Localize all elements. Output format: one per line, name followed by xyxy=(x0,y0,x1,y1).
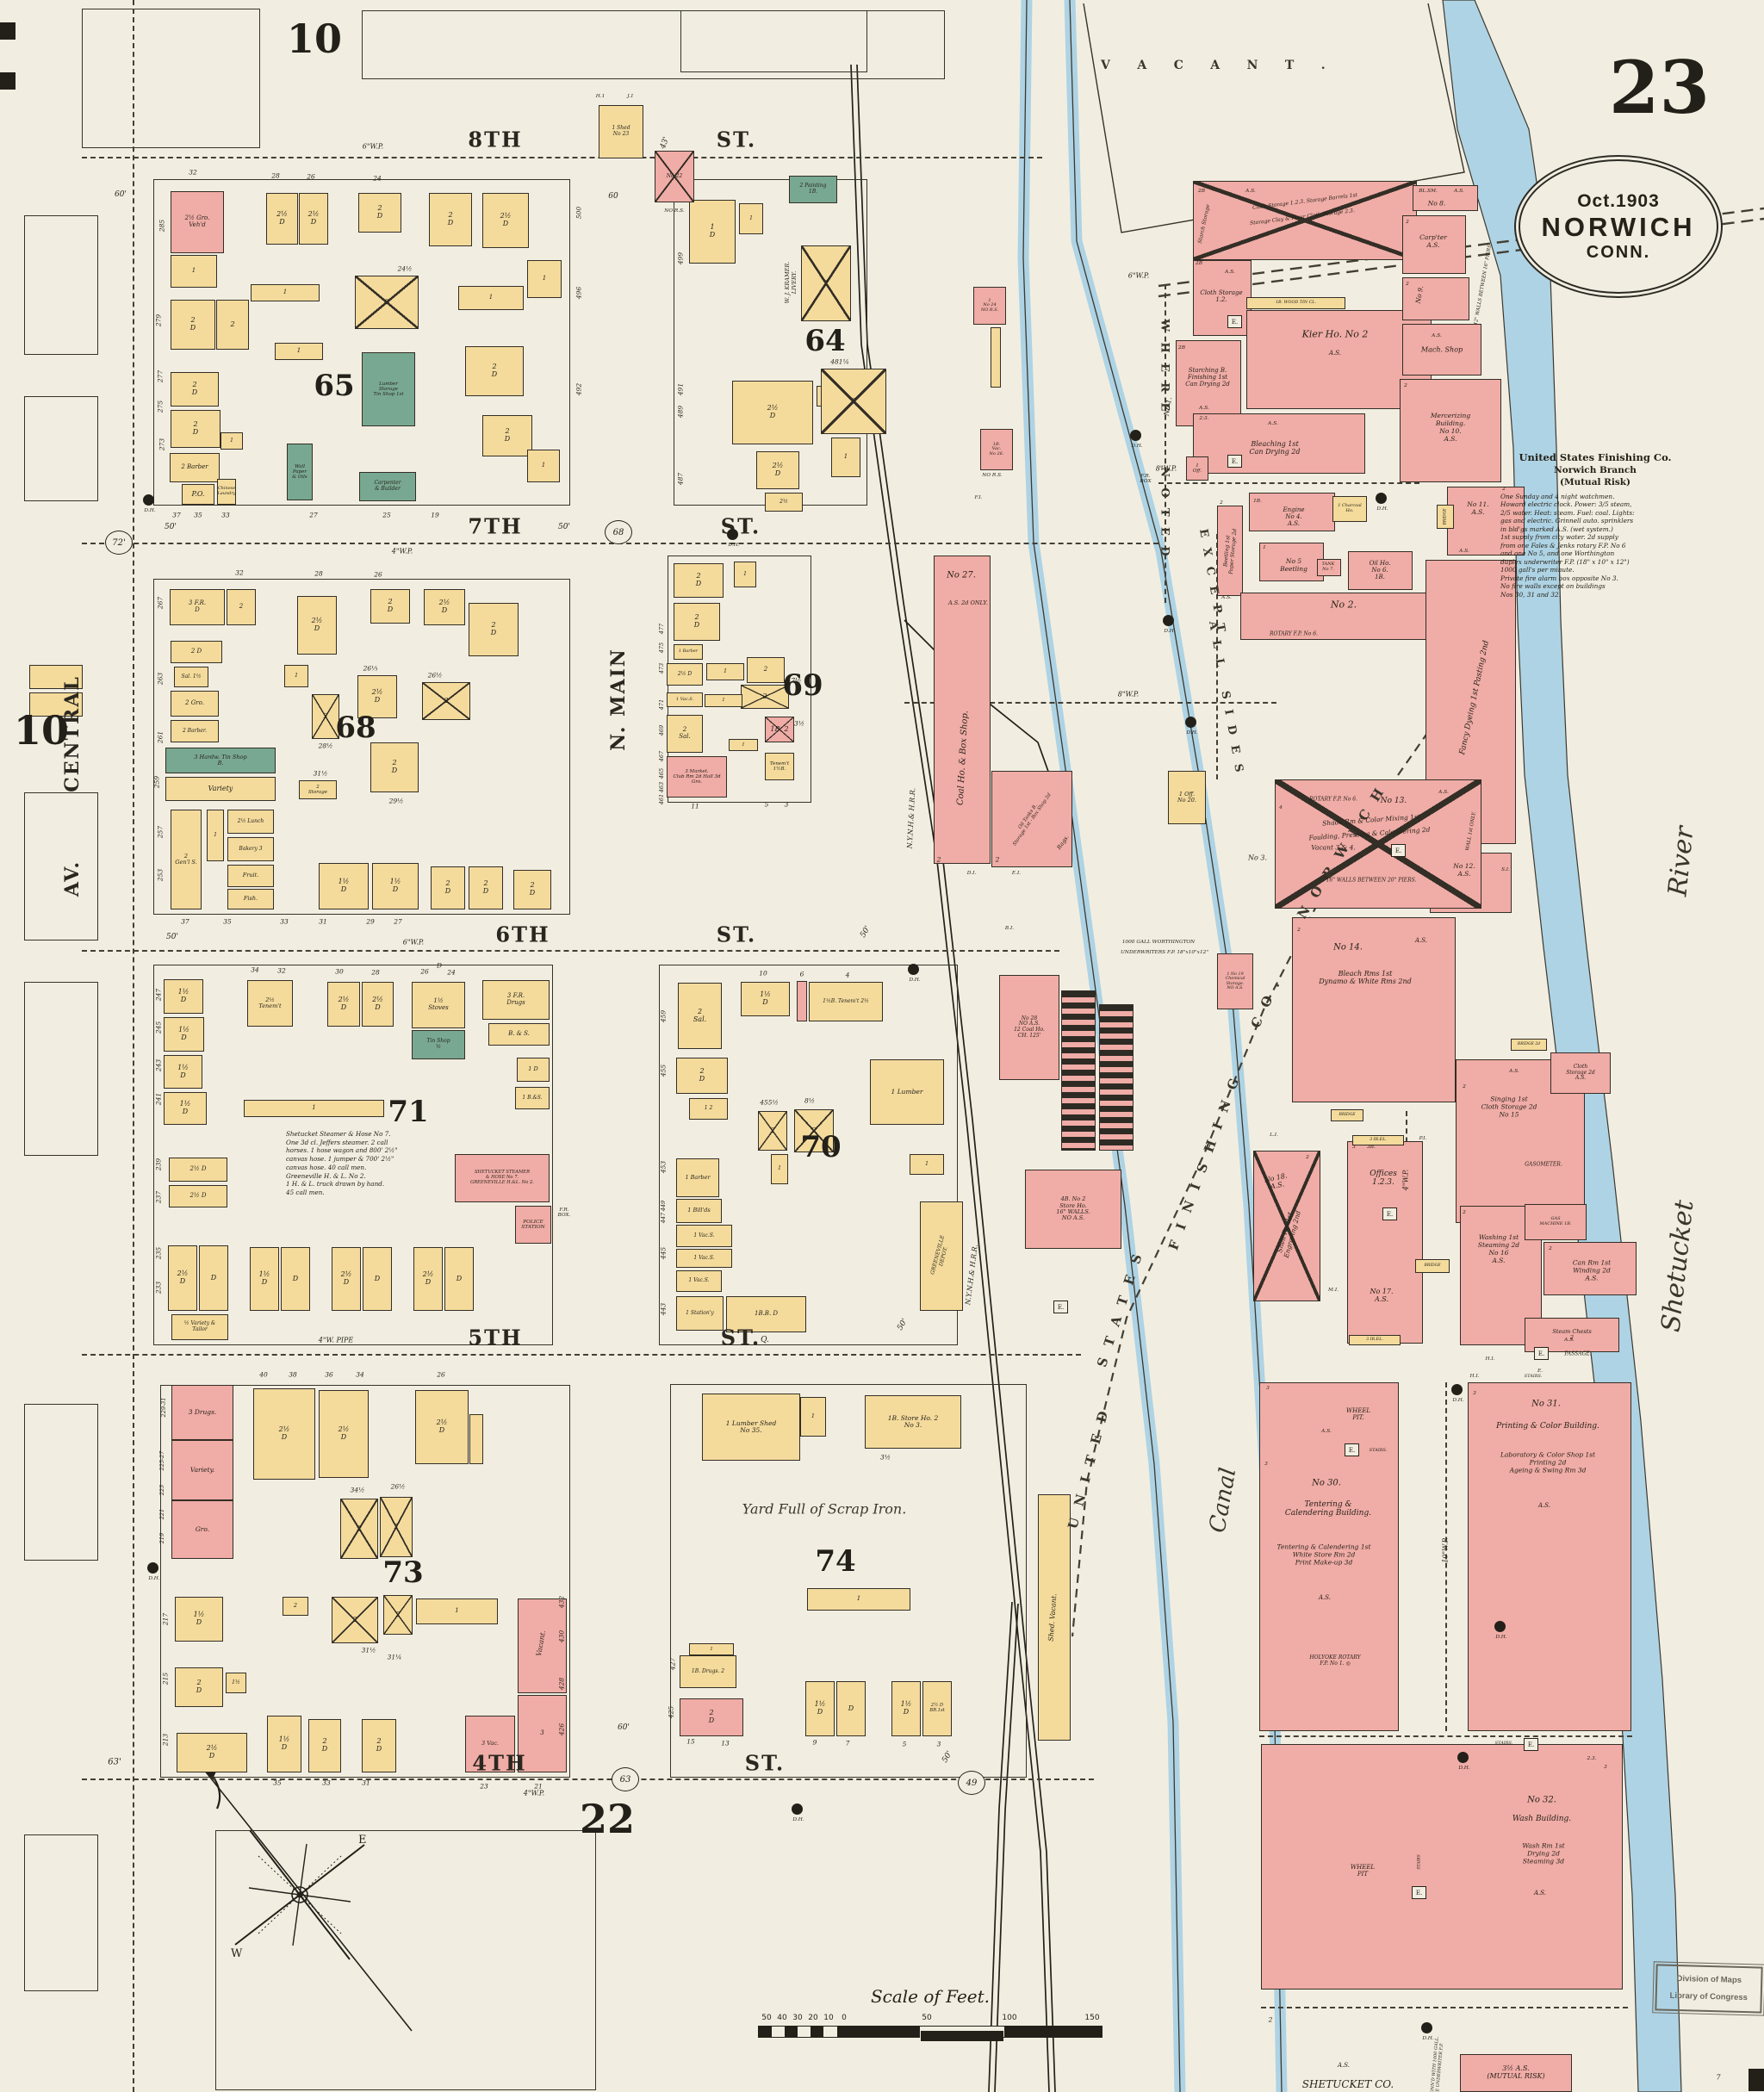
building: 1B. Store Ho. 2 No 3. xyxy=(865,1395,961,1449)
building: 3 Market. Club Rm 2d Hall 3d Gro. xyxy=(667,756,727,798)
building: 1 xyxy=(244,1100,384,1117)
map-label: Tentering & Calendering 1st White Store … xyxy=(1277,1543,1371,1567)
map-label: No 13. xyxy=(1381,797,1407,805)
map-label: B.I. xyxy=(1005,926,1014,931)
map-label: 229-31 xyxy=(160,1398,167,1418)
building: 1B. Drugs. 2 xyxy=(680,1655,736,1688)
company-note-line: duplex underwriter F.P. (18" x 10" x 12"… xyxy=(1500,558,1690,566)
company-note-line: 1000 gall's per minute. xyxy=(1500,566,1690,574)
building: Sal. 1½ xyxy=(174,667,208,687)
loc-line2: Library of Congress xyxy=(1660,1987,1756,2007)
map-label: 239 xyxy=(155,1158,163,1170)
building: 3 Hardw. Tin Shop B. xyxy=(165,748,276,773)
street-name-label: 4TH xyxy=(472,1751,526,1776)
company-note-line: from one Fales & Jenks rotary F.P. No 6 xyxy=(1500,542,1690,549)
building: BRIDGE xyxy=(1331,1109,1363,1121)
block-number: 70 xyxy=(800,1130,841,1164)
map-label: 491 xyxy=(677,383,685,395)
company-note-line: Howard electric clock. Power: 3/5 steam, xyxy=(1500,500,1690,508)
map-label: No 5 Beetling xyxy=(1280,557,1307,573)
double-hydrant-marker xyxy=(1163,615,1174,626)
building: Tin Shop ½ xyxy=(412,1030,465,1059)
building: 2 xyxy=(758,1111,787,1151)
map-label: 455½ xyxy=(760,1099,779,1107)
map-label: STAIRS. xyxy=(1495,1741,1513,1746)
map-label: 50' xyxy=(859,924,873,939)
map-label: 4 xyxy=(1279,805,1283,810)
company-note-line: No fire walls except on buildings xyxy=(1500,582,1690,590)
map-label: 34 xyxy=(356,1371,364,1379)
elevator-marker: E. xyxy=(1524,1738,1538,1751)
map-label: Carp'ter A.S. xyxy=(1419,233,1447,249)
map-label: 60' xyxy=(618,1723,630,1732)
building: 2 D xyxy=(465,346,524,396)
street-centerline xyxy=(1261,2007,1628,2008)
double-hydrant-marker xyxy=(1451,1384,1463,1395)
block-number: 64 xyxy=(804,324,845,358)
street-name-label: ST. xyxy=(721,1325,761,1350)
map-label: 60' xyxy=(115,190,127,199)
map-label: 3 xyxy=(1352,1145,1356,1150)
map-label: A.S. xyxy=(1415,937,1427,944)
map-label: 4"W.P. xyxy=(392,548,413,556)
map-label: 465 xyxy=(658,768,665,779)
map-label: 33 xyxy=(280,918,289,926)
fire-note-line: 45 call men. xyxy=(286,1189,458,1197)
map-label: STAIRS. xyxy=(1370,1448,1388,1453)
building: 1½ D xyxy=(891,1681,921,1736)
double-hydrant-label: D.H. xyxy=(1376,506,1388,512)
building: 1½ D xyxy=(319,863,369,909)
map-label: 426 xyxy=(558,1723,566,1735)
building: 1 Station'y xyxy=(676,1296,724,1331)
map-label: 237 xyxy=(155,1191,163,1203)
company-note-line: Nos 30, 31 and 32. xyxy=(1500,591,1690,599)
building: 3 IR.EL. xyxy=(1352,1135,1404,1145)
map-label: 223 xyxy=(158,1485,165,1495)
building: 2½ D xyxy=(168,1245,197,1311)
map-label: No 11. A.S. xyxy=(1467,500,1488,516)
map-label: 7 xyxy=(846,1740,850,1747)
map-label: 430 xyxy=(558,1630,566,1642)
map-label: 253 xyxy=(157,869,165,881)
elevator-marker: E. xyxy=(1227,315,1242,328)
double-hydrant-marker xyxy=(1130,430,1141,441)
map-label: A.S. xyxy=(1321,1429,1332,1434)
map-label: D xyxy=(437,962,442,970)
map-label: 35 xyxy=(223,918,232,926)
map-label: NO R.S. xyxy=(664,208,684,214)
map-layers: 8THST.7THST.6THST.5THST.4THST.2½ Gro. Ve… xyxy=(0,0,1764,2092)
building: 2 xyxy=(340,1499,378,1559)
map-label: No 31. xyxy=(1531,1400,1561,1409)
building: 2 D xyxy=(358,193,401,233)
map-label: 5 xyxy=(903,1741,907,1748)
building: 2 Barber. xyxy=(171,720,219,742)
map-label: 24 xyxy=(373,175,382,183)
building: 1 Lumber xyxy=(870,1059,944,1125)
map-label: CO. xyxy=(1248,968,1289,1031)
building: 1½ D xyxy=(175,1597,223,1642)
map-label: 2.3. xyxy=(1587,1756,1596,1761)
block-number: 74 xyxy=(815,1544,855,1579)
building: 2 D xyxy=(171,641,222,663)
map-label: 473 xyxy=(658,663,665,674)
scale-bar: Scale of Feet. 5040302010050100150 xyxy=(758,1986,1102,2038)
map-label: 2 xyxy=(1406,282,1409,287)
map-label: 492 xyxy=(575,383,583,395)
building: 1 xyxy=(220,432,243,450)
map-label: 2 xyxy=(937,856,941,864)
map-label: 3 xyxy=(1604,1765,1607,1770)
building: 1 xyxy=(734,562,756,587)
scale-tick: 20 xyxy=(808,2014,817,2022)
corner-marker: 63 xyxy=(612,1767,639,1791)
map-label: Wash Building. xyxy=(1512,1815,1571,1823)
company-note-line: 2/5 water. Heat: steam. Fuel: coal. Ligh… xyxy=(1500,509,1690,517)
map-label: 6"W.P. xyxy=(363,143,383,151)
building: 2½ D xyxy=(732,381,813,444)
lot-frame xyxy=(24,982,98,1156)
block-number: 22 xyxy=(580,1796,635,1842)
map-label: H.I. xyxy=(1469,1374,1479,1379)
building: 1 xyxy=(800,1397,826,1437)
map-label: No 12. A.S. xyxy=(1453,862,1475,878)
map-label: Yard Full of Scrap Iron. xyxy=(742,1501,907,1518)
map-label: A.S. xyxy=(1338,2062,1350,2069)
company-note-line: One Sunday and 4 night watchmen. xyxy=(1500,493,1690,500)
building xyxy=(1099,1004,1134,1151)
building: Variety. xyxy=(171,1440,233,1500)
map-label: 11 xyxy=(691,803,699,810)
scale-tick: 0 xyxy=(842,2014,847,2022)
building: 1½ D xyxy=(164,979,203,1014)
map-label: W. J. KRAMER. LIVERY. xyxy=(784,262,798,304)
building: 2 xyxy=(332,1597,378,1643)
block-number: 65 xyxy=(314,369,354,403)
building: 2 D xyxy=(431,866,465,909)
company-note-line: gas and electric. Grinnell auto. sprinkl… xyxy=(1500,517,1690,525)
building: D xyxy=(281,1247,310,1311)
map-label: A.S. xyxy=(1268,421,1278,426)
building: 2½ D xyxy=(319,1390,369,1478)
map-label: A.S. xyxy=(1245,189,1256,194)
building: 1 No 19 Chemical Storage. NO A.S. xyxy=(1217,953,1253,1009)
map-label: 2 xyxy=(996,856,1000,864)
map-label: 29 xyxy=(366,918,375,926)
scale-bar-rule xyxy=(758,2026,1102,2038)
double-hydrant-label: D.H. xyxy=(148,1576,159,1581)
scale-tick: 40 xyxy=(777,2014,786,2022)
building: 1B. Vac. No 26. xyxy=(980,429,1013,470)
map-label: V A C A N T . xyxy=(1101,59,1337,72)
building: Variety xyxy=(165,777,276,801)
building: 2 Gen'l S. xyxy=(171,810,202,909)
map-label: H.I. xyxy=(1485,1356,1494,1362)
map-label: Bleach Rms 1st Dynamo & White Rms 2nd xyxy=(1319,970,1412,985)
map-label: A.S. xyxy=(1538,1502,1550,1509)
map-label: E.I. xyxy=(1012,871,1021,876)
building: 3 Drugs. xyxy=(171,1385,233,1440)
map-label: D.I. xyxy=(967,871,976,876)
map-label: 1B. xyxy=(1253,499,1262,504)
map-label: 32 xyxy=(235,569,244,577)
company-note-body: One Sunday and 4 night watchmen.Howard e… xyxy=(1500,493,1690,599)
map-label: 43' xyxy=(659,136,671,151)
double-hydrant-label: D.H. xyxy=(1186,730,1197,736)
building xyxy=(1468,1382,1631,1731)
map-label: A.S. xyxy=(1225,270,1235,275)
building: 1 xyxy=(729,739,758,751)
building: 2 xyxy=(283,1597,308,1616)
street-centerline xyxy=(82,157,1042,158)
corner-marker: 72' xyxy=(105,531,133,555)
map-label: 26½ xyxy=(428,672,443,680)
building: 1½B. Tenem't 2½ xyxy=(809,982,883,1021)
map-label: 50' xyxy=(558,523,570,531)
map-label: 247 xyxy=(155,989,163,1001)
map-label: Oil Ho. No 6. 1B. xyxy=(1370,560,1391,580)
building: No 28 NO A.S. 12 Coal Ho. CH. 125' xyxy=(999,975,1059,1080)
map-label: 467 xyxy=(658,751,665,761)
building: Fish. xyxy=(227,889,274,909)
map-label: WHEEL PIT. xyxy=(1346,1407,1370,1421)
building: 1 Lumber Shed No 35. xyxy=(702,1394,800,1461)
map-label: F.I. xyxy=(974,495,982,500)
scale-tick: 150 xyxy=(1084,2014,1099,2022)
sheet-edge-mark xyxy=(0,22,16,40)
double-hydrant-label: D.H. xyxy=(1452,1398,1463,1403)
map-label: 35 xyxy=(273,1779,282,1787)
map-label: 2 xyxy=(1404,383,1407,388)
street-name-label: ST. xyxy=(717,922,756,947)
map-label: No 14. xyxy=(1333,943,1363,953)
map-label: 37 xyxy=(172,512,181,519)
street-name-label: 6TH xyxy=(495,922,550,947)
building: B. & S. xyxy=(488,1023,550,1046)
map-label: 6"W.P. CONN'D WITH 1000 GALL. DEANE UNDE… xyxy=(1428,2036,1445,2092)
map-label: BL.SM. xyxy=(1419,189,1438,194)
building: 2 D xyxy=(370,589,410,624)
map-label: Tentering & Calendering Building. xyxy=(1285,1500,1371,1518)
map-label: 3B. xyxy=(1367,1145,1376,1150)
elevator-marker: E. xyxy=(1534,1347,1549,1360)
block-number: 10 xyxy=(14,707,69,754)
building: 1½ D xyxy=(741,982,790,1016)
scale-tick: 100 xyxy=(1002,2014,1016,2022)
building xyxy=(991,327,1001,388)
map-label: 469 xyxy=(658,725,665,736)
map-label: 489 xyxy=(677,406,685,418)
map-label: 447 xyxy=(660,1213,667,1223)
building: 1 xyxy=(831,438,860,477)
building: POLICE STATION xyxy=(515,1206,551,1244)
block-number: 68 xyxy=(335,711,376,745)
building: 1½ xyxy=(226,1673,246,1693)
map-label: ROTARY F.P. No 6. xyxy=(1309,797,1357,803)
map-label: 31 xyxy=(362,1779,370,1787)
lot-frame xyxy=(82,9,260,148)
building: 2 Gro. xyxy=(171,691,219,717)
fire-company-note: Shetucket Steamer & Hose No 7.One 3d cl.… xyxy=(286,1130,458,1197)
map-label: 4"W.P. xyxy=(524,1790,544,1797)
sheet-edge-mark xyxy=(1748,2069,1764,2091)
building: 1½ D xyxy=(372,863,419,909)
map-label: UNITED xyxy=(1065,1398,1114,1530)
map-label: 267 xyxy=(157,597,165,609)
map-label: A.S. xyxy=(1534,1890,1546,1896)
building: 2 D xyxy=(676,1058,728,1094)
map-label: F.R. BOX. xyxy=(558,1207,571,1218)
map-label: No 2. xyxy=(1331,599,1357,611)
map-label: 235 xyxy=(155,1247,163,1259)
building: 1 xyxy=(275,343,323,360)
fire-note-line: horses. 1 hose wagon and 800' 2½" xyxy=(286,1146,458,1155)
map-label: A.S. xyxy=(1459,549,1469,554)
map-label: 487 xyxy=(677,473,685,485)
building: 2 D xyxy=(171,372,219,407)
scale-tick: 50 xyxy=(922,2014,931,2022)
map-label: 259 xyxy=(153,776,161,788)
map-label: 496 xyxy=(575,287,583,299)
double-hydrant-label: D.H. xyxy=(1422,2036,1433,2041)
building: 4B. No 2 Store Ho. 16" WALLS. NO A.S. xyxy=(1025,1170,1121,1249)
building: D xyxy=(444,1247,474,1311)
map-label: 461 xyxy=(658,794,665,804)
building xyxy=(1193,181,1417,260)
map-label: 477 xyxy=(658,624,665,634)
building: 3 F.R. D xyxy=(170,589,225,625)
building: 2 xyxy=(383,1595,413,1635)
building: D xyxy=(363,1247,392,1311)
map-label: SHETUCKET CO. xyxy=(1302,2078,1394,2090)
building: 1 xyxy=(706,663,744,680)
map-label: 3 xyxy=(1473,1391,1476,1396)
fire-note-line: Shetucket Steamer & Hose No 7. xyxy=(286,1130,458,1139)
map-label: 26½ xyxy=(391,1483,406,1491)
building: 1 xyxy=(739,203,763,234)
elevator-marker: E. xyxy=(1345,1443,1359,1456)
lot-frame xyxy=(215,1830,596,2090)
building: 1 xyxy=(284,665,308,687)
stamp-city: NORWICH xyxy=(1542,212,1696,243)
map-label: 2 xyxy=(1297,928,1301,933)
building: 1 Barber xyxy=(676,1158,719,1197)
map-label: 2 xyxy=(1463,1210,1466,1215)
scale-tick: 10 xyxy=(823,2014,833,2022)
building: Carpenter & Builder xyxy=(359,472,416,501)
building: 3½ A.S. (MUTUAL RISK) xyxy=(1460,2054,1572,2092)
map-label: 2B xyxy=(1196,261,1202,266)
building: 2½ D xyxy=(253,1388,315,1480)
building: 2 Sal. xyxy=(667,715,703,753)
building: 2½ D xyxy=(332,1247,361,1311)
map-label: 257 xyxy=(157,826,165,838)
double-hydrant-marker xyxy=(1421,2022,1432,2033)
map-label: 1000 GALL WORTHINGTON xyxy=(1122,940,1196,945)
map-label: 13 xyxy=(721,1740,730,1747)
building: 1 xyxy=(910,1154,944,1175)
lot-frame xyxy=(24,1834,98,1991)
map-label: 31½ xyxy=(362,1647,376,1654)
map-label: 19 xyxy=(431,512,439,519)
map-label: 243 xyxy=(155,1059,163,1071)
double-hydrant-label: D.H. xyxy=(728,543,739,548)
scale-tick: 50 xyxy=(761,2014,771,2022)
building: 2½ Lunch xyxy=(227,810,274,834)
building: 2 xyxy=(380,1497,413,1557)
map-label: 26 xyxy=(374,571,382,579)
map-label: P.I. xyxy=(1419,1136,1427,1141)
double-hydrant-marker xyxy=(1457,1752,1469,1763)
building: 1 No 24 NO R.S. xyxy=(973,287,1006,325)
building: 1½ D xyxy=(250,1247,279,1311)
scale-bar-ticks: 5040302010050100150 xyxy=(758,2014,1102,2024)
building: 2 Painting 1B. xyxy=(789,176,837,203)
map-label: 21 xyxy=(534,1783,543,1791)
building: 2 D xyxy=(674,563,724,598)
building: 2½ D xyxy=(667,663,703,686)
street-centerline xyxy=(1259,1735,1632,1737)
map-label: 2 xyxy=(1406,220,1409,225)
map-label: 28 xyxy=(371,969,380,977)
map-label: L.I. xyxy=(1270,1133,1278,1138)
map-label: 60 xyxy=(608,192,618,201)
building: 1 D xyxy=(689,200,736,264)
map-label: FINISHING xyxy=(1165,1065,1246,1252)
map-label: 241 xyxy=(155,1093,163,1105)
map-label: 471 xyxy=(658,699,665,710)
map-label: 455 xyxy=(660,1065,668,1077)
double-hydrant-label: D.H. xyxy=(909,978,920,983)
double-hydrant-marker xyxy=(1185,717,1196,728)
map-label: 31¼ xyxy=(388,1654,402,1661)
map-label: 2 xyxy=(1220,500,1223,506)
building: 2 D xyxy=(362,1719,396,1772)
map-label: 2 xyxy=(1463,1084,1466,1089)
map-label: A.S. xyxy=(1438,790,1449,795)
map-label: AV. xyxy=(61,860,84,897)
map-label: 2B xyxy=(1178,345,1185,351)
building: 1 Shed No 23 xyxy=(599,105,643,158)
building: 2 xyxy=(216,300,249,350)
building: Cloth Storage 2d A.S. xyxy=(1550,1052,1611,1094)
map-label: 28½ xyxy=(319,742,333,750)
map-label: 499 xyxy=(677,252,685,264)
building: BRIDGE xyxy=(1415,1259,1450,1273)
map-label: 8½ xyxy=(804,1097,815,1105)
building: 1B. WOOD TIN CL. xyxy=(1246,297,1345,309)
map-label: 3 xyxy=(937,1741,941,1748)
map-label: 463 xyxy=(658,782,665,792)
map-label: STATES xyxy=(1094,1240,1149,1369)
double-hydrant-label: D.H. xyxy=(1164,629,1175,634)
map-label: 481¼ xyxy=(830,358,849,366)
building: P.O. xyxy=(182,484,214,505)
map-label: 12" WALLS BETWEEN 16" PIERS. xyxy=(1474,243,1494,326)
map-label: 32 xyxy=(277,967,286,975)
map-label: 25 xyxy=(382,512,391,519)
building: GAS MACHINE 1B. xyxy=(1525,1204,1587,1240)
building: 1 2 xyxy=(689,1098,728,1120)
map-label: STAIRS xyxy=(1418,1854,1422,1869)
map-label: A.S. 2d ONLY. xyxy=(948,599,988,606)
map-label: NOTED xyxy=(1158,467,1171,567)
map-label: 277 xyxy=(157,370,165,382)
building: 2 D xyxy=(429,193,472,246)
map-label: 275 xyxy=(157,400,165,413)
street-centerline xyxy=(82,1354,1081,1356)
